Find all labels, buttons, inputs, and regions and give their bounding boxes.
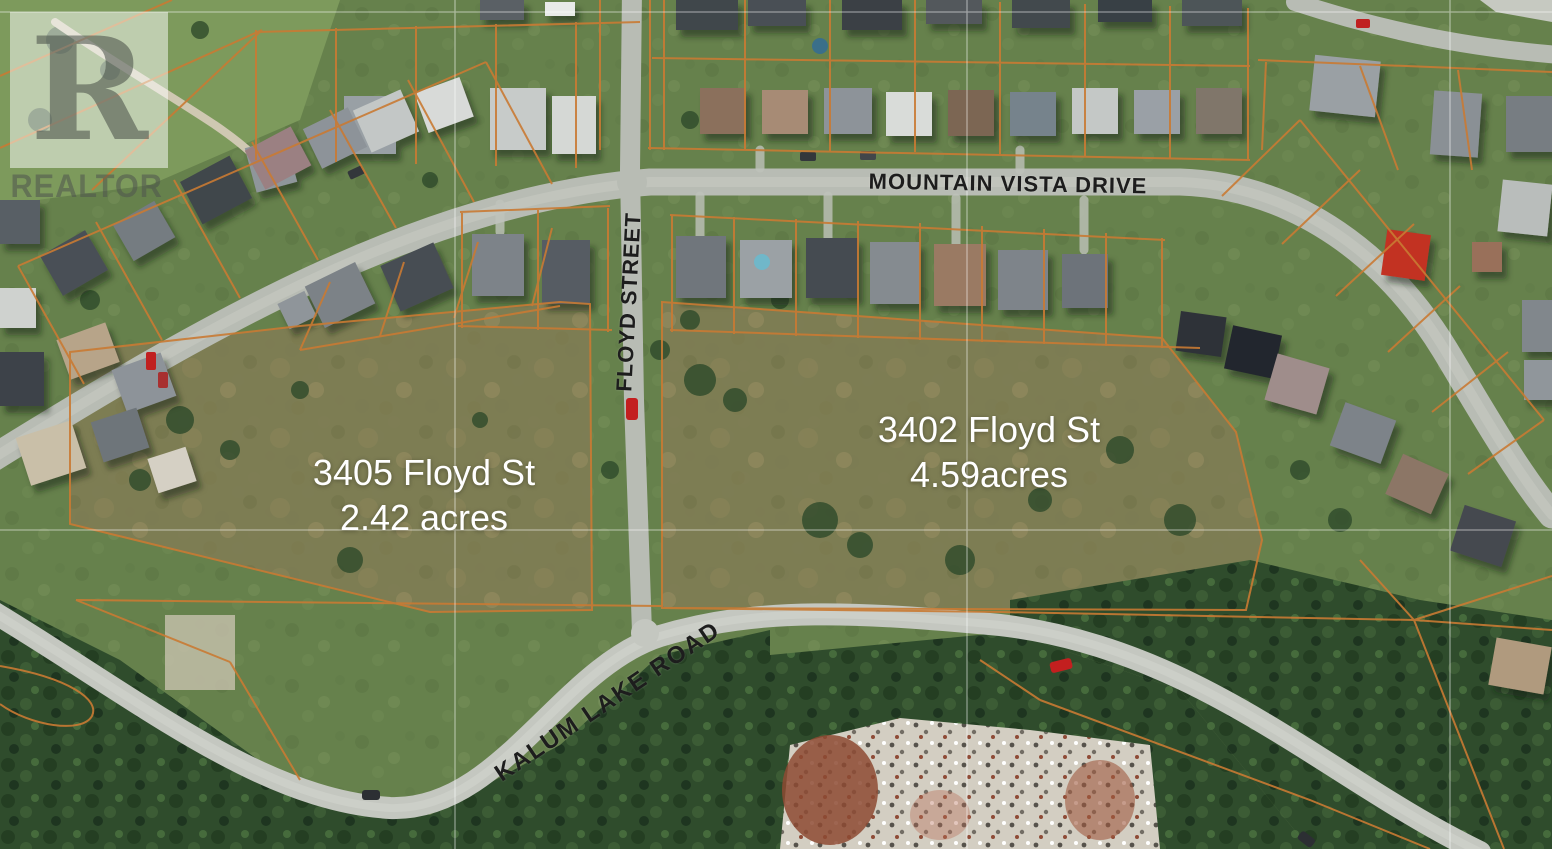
- realtor-watermark-text: REALTOR: [8, 168, 165, 205]
- realtor-logo-r-icon: R: [30, 15, 148, 165]
- aerial-map: MOUNTAIN VISTA DRIVE FLOYD STREET KALUM …: [0, 0, 1552, 849]
- realtor-logo: R: [10, 12, 168, 168]
- road-floyd: [630, 0, 642, 632]
- aerial-photo-layer: [0, 0, 1552, 849]
- red-car-floyd: [626, 398, 638, 420]
